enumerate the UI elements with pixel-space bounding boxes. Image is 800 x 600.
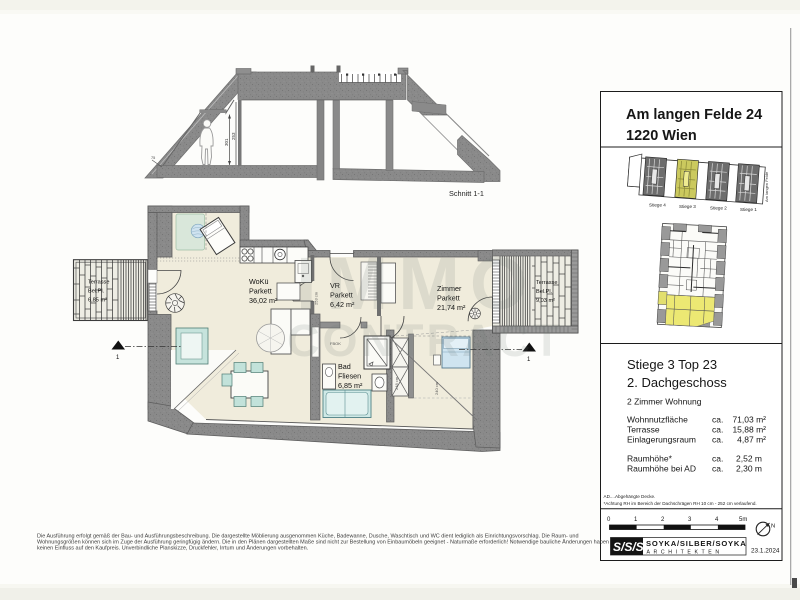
svg-text:Raumhöhe bei AD: Raumhöhe bei AD [627, 464, 696, 474]
svg-text:1220 Wien: 1220 Wien [626, 128, 697, 144]
svg-text:71,03 m²: 71,03 m² [732, 415, 766, 425]
svg-text:248 cm: 248 cm [394, 376, 399, 390]
svg-text:6,85 m²: 6,85 m² [338, 381, 363, 390]
svg-text:2,52 m: 2,52 m [736, 454, 762, 464]
svg-text:253: 253 [231, 132, 236, 140]
svg-text:240 cm: 240 cm [434, 381, 439, 395]
svg-text:5m: 5m [739, 517, 747, 523]
svg-text:Stiege 3: Stiege 3 [679, 204, 696, 209]
svg-text:Terrasse: Terrasse [536, 280, 557, 286]
svg-text:ca.: ca. [712, 435, 723, 445]
svg-text:SOYKA/SILBER/SOYKA: SOYKA/SILBER/SOYKA [646, 539, 746, 548]
svg-text:36,02 m²: 36,02 m² [249, 296, 278, 305]
svg-text:ca.: ca. [712, 415, 723, 425]
svg-text:*Achtung RH im Bereich der Dac: *Achtung RH im Bereich der Dachschrägen … [604, 501, 757, 506]
svg-text:6,85 m²: 6,85 m² [88, 298, 107, 304]
svg-text:Einlagerungsraum: Einlagerungsraum [627, 435, 696, 445]
svg-text:N: N [771, 524, 775, 530]
svg-text:keinen Einfluss auf den Kaufpr: keinen Einfluss auf den Kaufpreis. Unver… [37, 545, 309, 552]
svg-text:CONTRACT: CONTRACT [287, 315, 563, 366]
svg-text:Fliesen: Fliesen [338, 372, 361, 381]
svg-text:2. Dachgeschoss: 2. Dachgeschoss [627, 375, 727, 390]
svg-text:Terrasse: Terrasse [627, 425, 660, 435]
svg-text:Bel.Pl.: Bel.Pl. [536, 289, 553, 295]
svg-text:1: 1 [116, 355, 120, 361]
svg-text:9,03 m²: 9,03 m² [536, 298, 555, 304]
svg-text:Schnitt 1-1: Schnitt 1-1 [449, 189, 484, 198]
svg-text:Raumhöhe*: Raumhöhe* [627, 454, 673, 464]
svg-text:ARCHITEKTEN: ARCHITEKTEN [647, 550, 723, 556]
svg-text:Stiege 4: Stiege 4 [649, 203, 666, 208]
svg-text:Am langen Felde 24: Am langen Felde 24 [626, 107, 762, 123]
svg-text:Stiege 1: Stiege 1 [740, 207, 757, 212]
svg-text:15,88 m²: 15,88 m² [732, 425, 766, 435]
svg-text:Wohnungsgrößen können sich im: Wohnungsgrößen können sich im Zuge der A… [37, 539, 609, 546]
svg-text:ca.: ca. [712, 454, 723, 464]
svg-text:Parkett: Parkett [249, 287, 272, 296]
svg-text:Wohnnutzfläche: Wohnnutzfläche [627, 415, 688, 425]
svg-text:4,87 m²: 4,87 m² [737, 435, 766, 445]
svg-text:AD....Abgehängte Decke.: AD....Abgehängte Decke. [604, 494, 656, 499]
svg-text:WoKü: WoKü [249, 277, 268, 286]
svg-text:23.1.2024: 23.1.2024 [751, 548, 780, 555]
svg-text:301: 301 [224, 138, 229, 146]
svg-text:Terrasse: Terrasse [88, 280, 109, 286]
svg-text:Stiege 3 Top 23: Stiege 3 Top 23 [627, 357, 717, 372]
svg-text:Bel.Pl.: Bel.Pl. [88, 289, 105, 295]
svg-text:ca.: ca. [712, 464, 723, 474]
svg-text:S/S/S: S/S/S [613, 540, 644, 554]
svg-text:2,30 m: 2,30 m [736, 464, 762, 474]
svg-text:ca.: ca. [712, 425, 723, 435]
svg-text:2 Zimmer Wohnung: 2 Zimmer Wohnung [627, 397, 702, 407]
svg-text:Am langen Felde: Am langen Felde [764, 171, 769, 202]
svg-text:IMMO: IMMO [296, 242, 537, 325]
svg-text:Stiege 2: Stiege 2 [710, 206, 727, 211]
svg-text:75: 75 [151, 156, 155, 160]
